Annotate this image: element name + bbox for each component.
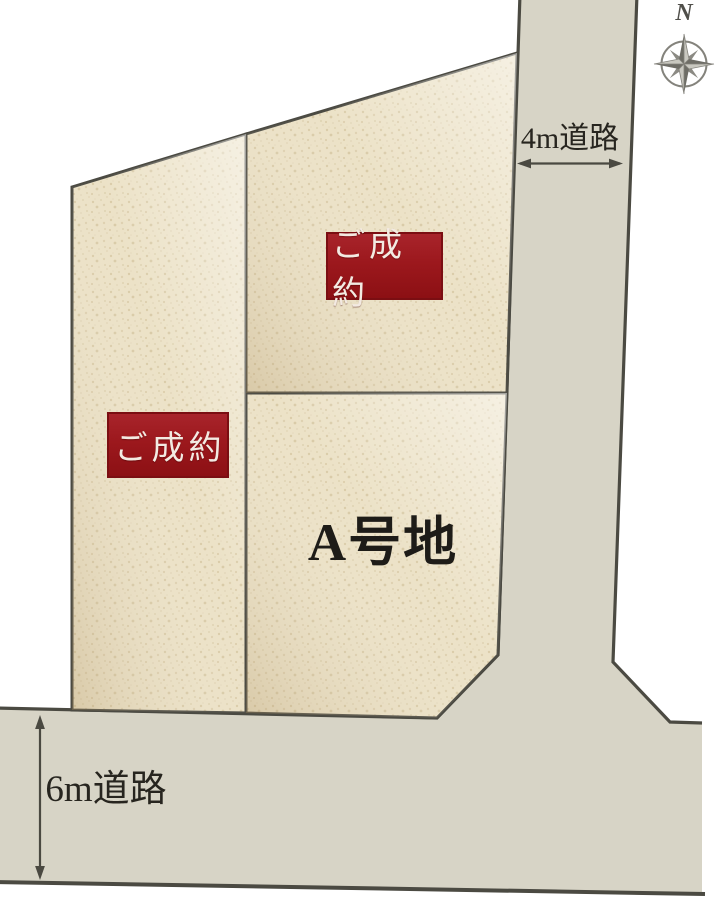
lot-shading xyxy=(72,53,517,718)
road-6m-label: 6m道路 xyxy=(40,770,172,811)
compass-north-label: N xyxy=(660,0,708,26)
road-4m-label: 4m道路 xyxy=(500,122,640,155)
compass-rose-icon xyxy=(654,34,714,94)
sold-badge-west: ご成約 xyxy=(107,412,229,478)
sold-badge-northeast: ご成約 xyxy=(326,232,443,300)
lot-a-label: A号地 xyxy=(253,514,513,572)
site-plan-diagram: N 4m道路 6m道路 ご成約 ご成約 A号地 xyxy=(0,0,722,900)
